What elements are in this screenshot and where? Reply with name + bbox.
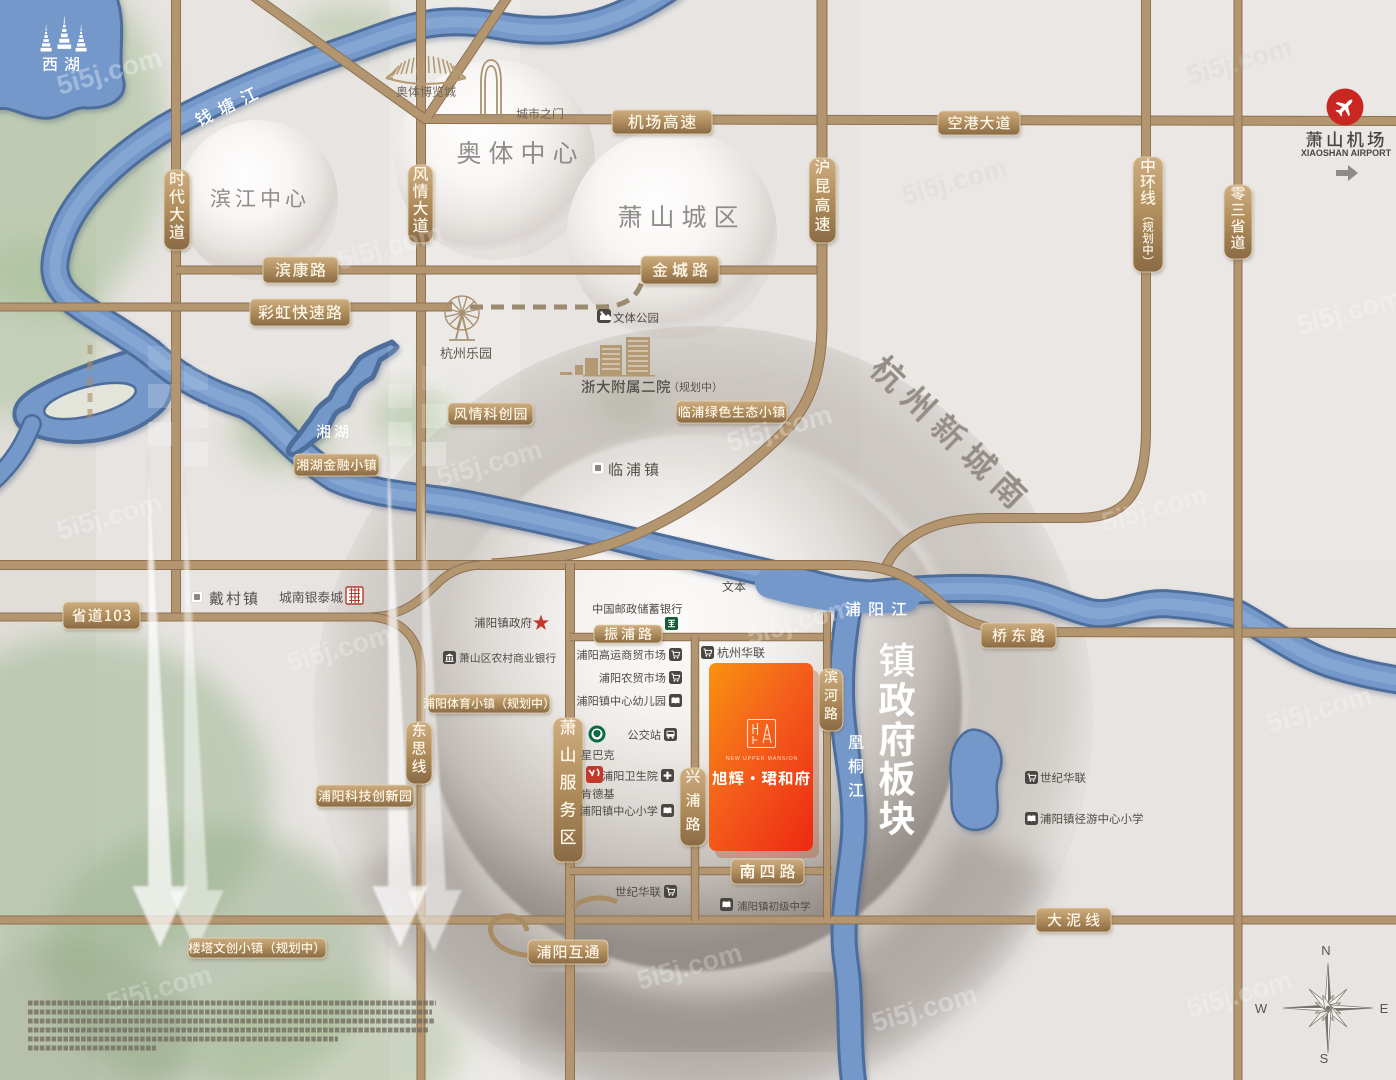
svg-text:S: S: [1320, 1051, 1329, 1066]
svg-text:N: N: [1321, 943, 1330, 958]
svg-text:XIAOSHAN AIRPORT: XIAOSHAN AIRPORT: [1301, 148, 1392, 158]
svg-text:NEW UPPER MANSION: NEW UPPER MANSION: [726, 756, 798, 762]
svg-text:E: E: [1380, 1001, 1389, 1016]
